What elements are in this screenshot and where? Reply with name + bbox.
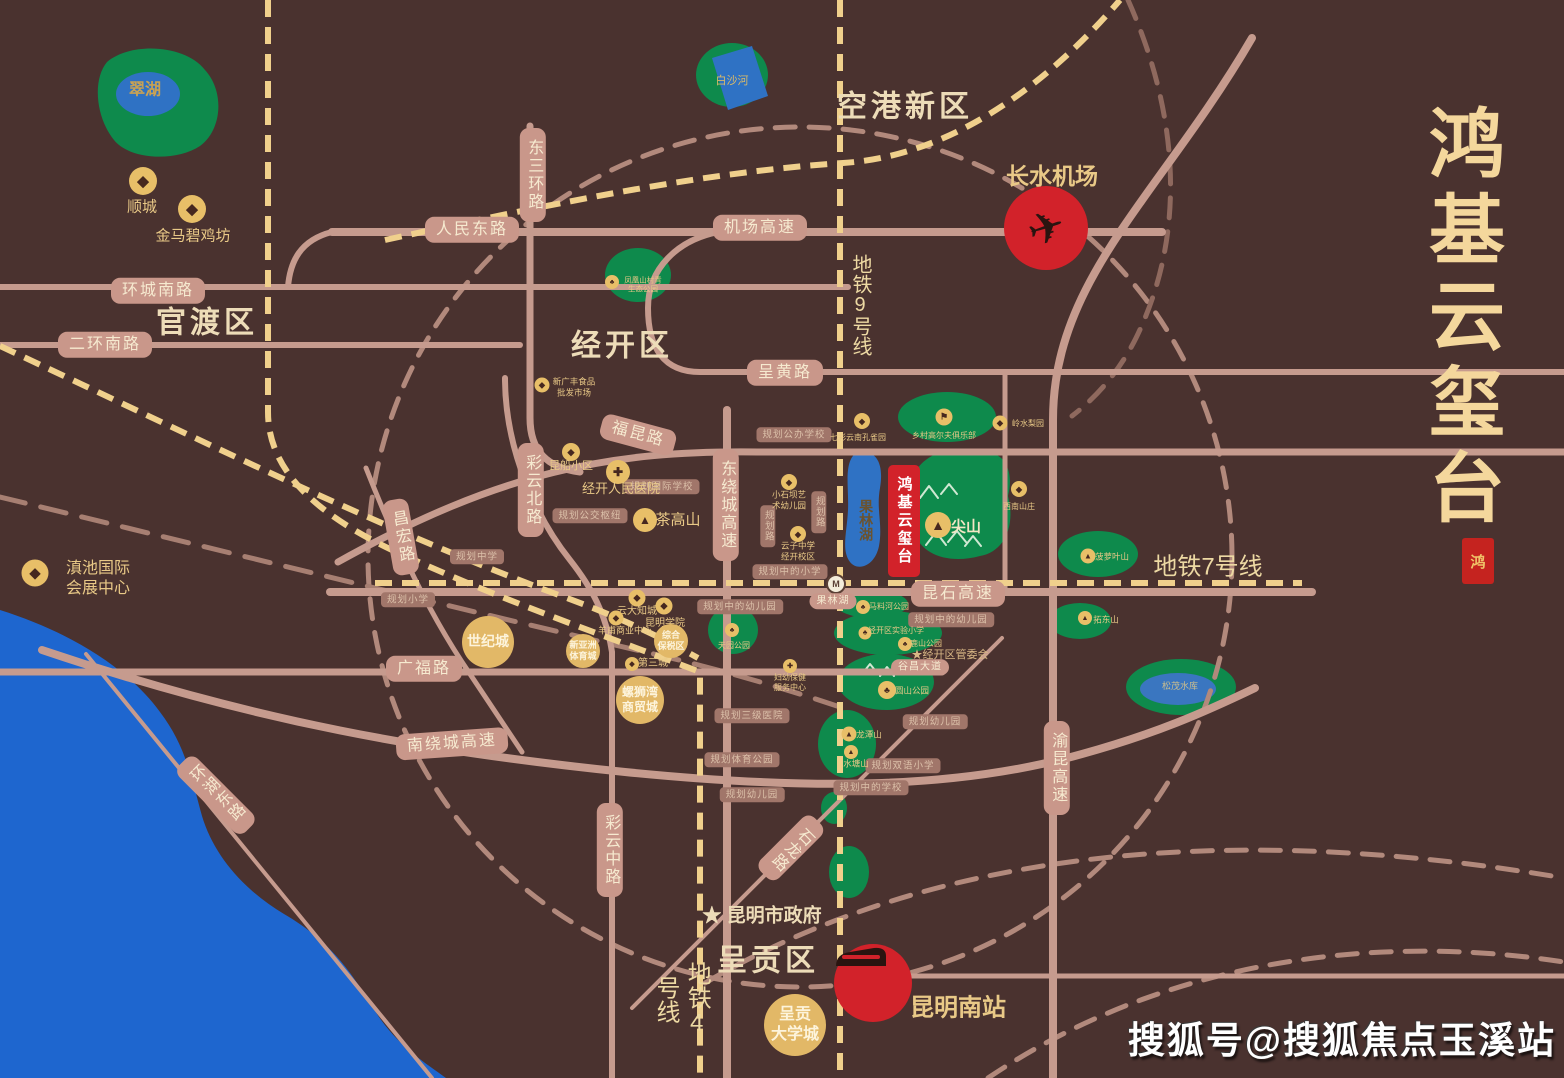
jianshan-label: 尖山 <box>951 517 981 537</box>
poi-xinan-shanzhuang: ◆ <box>1011 481 1027 497</box>
guolinhu-label: 果林湖 <box>857 499 875 541</box>
poi-golf-club-label: 乡村高尔夫俱乐部 <box>912 431 976 441</box>
airport-label: 长水机场 <box>1006 162 1098 192</box>
jichang-expwy: 机场高速 <box>713 215 807 241</box>
poi-xiaoshiba-kindergarten-label: 小石坝艺 术幼儿园 <box>772 489 806 510</box>
district-guandu: 官渡区 <box>156 304 258 343</box>
dongsanhuan-road: 东三环路 <box>520 128 546 222</box>
plan-pill: 规划路 <box>811 491 826 533</box>
chenghuang-road: 呈黄路 <box>747 360 823 386</box>
huanhu-dong-road: 环湖东路 <box>173 752 258 837</box>
train-icon <box>834 944 888 972</box>
poi-lushan-park-label: 鹿山公园 <box>910 639 942 649</box>
guchang-road: 谷昌大道 <box>891 659 949 675</box>
poi-tuodong-hill-label: 拓东山 <box>1093 615 1119 626</box>
plan-pill: 规划中的小学 <box>752 564 827 579</box>
poi-maliaohe-park: ♣ <box>856 600 870 614</box>
poi-maliaohe-park-label: 马料河公园 <box>869 602 909 612</box>
poi-tianyuan-park-label: 天园公园 <box>718 641 750 651</box>
district-chenggong: 呈贡区 <box>717 942 819 981</box>
landmark-shijicheng: 世纪城 <box>462 616 514 668</box>
plan-pill: 规划小学 <box>381 592 435 607</box>
songmao-label: 松茂水库 <box>1162 681 1198 693</box>
poi-jinma-biji-fang: ◆ <box>178 195 206 223</box>
poi-tuodong-hill: ▲ <box>1078 611 1092 625</box>
poi-peacock-park-label: 七彩云南孔雀园 <box>830 433 886 443</box>
caiyun-zhong-road: 彩云中路 <box>597 803 623 897</box>
plan-pill: 规划中的幼儿园 <box>697 599 783 614</box>
poi-fuyou-center: ✚ <box>783 659 797 673</box>
landmark-chenggong-univ-town: 呈贡 大学城 <box>764 994 826 1056</box>
plan-pill: 规划公办学校 <box>756 427 831 442</box>
south-station-marker <box>834 944 912 1022</box>
guangfu-road: 广福路 <box>386 656 462 682</box>
poi-chagaoshan: ▲ <box>633 508 657 532</box>
plan-pill: 规划公交枢纽 <box>552 508 627 523</box>
project-title-vertical: 鸿基云玺台 <box>1404 104 1514 534</box>
huancheng-nan-road: 环城南路 <box>111 278 205 304</box>
poi-fuyou-center-label: 妇幼保健 服务中心 <box>774 673 806 693</box>
nanraocheng-expwy: 南绕城高速 <box>395 727 509 761</box>
poi-yangfu-center-label: 羊甫商业中心 <box>598 625 652 636</box>
poi-kunchuan-block-label: 昆船小区 <box>549 460 593 474</box>
project-marker: 鸿基云玺台 <box>888 465 920 577</box>
erhuan-nan-road: 二环南路 <box>58 332 152 358</box>
poi-lingshui-liyuan: ◆ <box>993 416 1008 431</box>
changhong-road: 昌宏路 <box>381 497 420 576</box>
project-name: 鸿基云玺台 <box>894 476 915 566</box>
kunshi-expwy: 昆石高速 <box>911 581 1005 607</box>
poi-xinguangfeng-market: ◆ <box>535 378 550 393</box>
poi-golf-club: ⚑ <box>936 409 953 426</box>
metro-logo-letter: M <box>832 579 840 589</box>
landmark-luosiwan: 螺狮湾 商贸城 <box>616 676 664 724</box>
poi-dianchi-expo-center: ◆ <box>22 560 49 587</box>
poi-jianshan-peak: ▲ <box>925 512 951 538</box>
poi-boluoye-hill: ▲ <box>1081 549 1096 564</box>
plan-pill: 规划路 <box>760 505 775 547</box>
seal-character: 鸿 <box>1470 551 1485 572</box>
poi-longtanshan-label: 龙潭山 <box>856 730 882 741</box>
poi-boluoye-hill-label: 菠萝叶山 <box>1095 552 1129 563</box>
plan-pill: 规划三级医院 <box>714 708 789 723</box>
landmark-xinyazhou: 新亚洲 体育城 <box>566 634 600 668</box>
poi-fenghuangshan-park: ♣ <box>605 275 619 289</box>
yukun-expwy: 渝昆高速 <box>1044 721 1070 815</box>
poi-peacock-park: ◆ <box>854 413 870 429</box>
shilong-road: 石龙路 <box>755 812 827 884</box>
poi-dianchi-expo-center-label: 滇池国际 会展中心 <box>66 559 130 599</box>
south-station-label: 昆明南站 <box>910 992 1006 1023</box>
metro-station-icon: M <box>826 574 846 594</box>
plan-pill: 规划中学 <box>450 549 504 564</box>
poi-shuncheng-label: 顺城 <box>127 199 157 218</box>
poi-tianyuan-park: ♣ <box>725 623 739 637</box>
metro-7-label: 地铁7号线 <box>1153 551 1262 582</box>
renmin-dong-road: 人民东路 <box>425 217 519 243</box>
metro-9-label: 地铁9号线 <box>847 254 873 356</box>
poi-jinma-biji-fang-label: 金马碧鸡坊 <box>155 228 230 247</box>
poi-disancheng-label: 第三城 <box>638 658 668 671</box>
poi-fenghuangshan-park-label: 凤凰山村青 生态公园 <box>624 276 662 295</box>
poi-kunchuan-block: ◆ <box>562 443 580 461</box>
fukun-road: 福昆路 <box>598 412 678 457</box>
brand-seal: 鸿 <box>1462 538 1494 584</box>
poi-yunzi-school-label: 云子中学 经开校区 <box>781 540 815 561</box>
poi-jingkai-hospital-label: 经开人民医院 <box>582 481 660 497</box>
poi-xinguangfeng-market-label: 新广丰食品 批发市场 <box>553 376 596 397</box>
district-konggang: 空港新区 <box>837 88 973 127</box>
airport-marker: ✈ <box>1004 186 1088 270</box>
poi-xinan-shanzhuang-label: 西南山庄 <box>1003 502 1035 512</box>
location-map: 鸿基云玺台 ✈ M 鸿基云玺台 鸿 搜狐号@搜狐焦点玉溪站 空港新区官渡区经开区… <box>0 0 1564 1078</box>
plan-pill: 规划中的学校 <box>833 780 908 795</box>
dongraocheng-expwy: 东绕城高速 <box>713 449 739 561</box>
landmark-zonghe-baoshuiqu: 综合 保税区 <box>654 624 688 658</box>
caiyun-bei-road: 彩云北路 <box>518 443 544 537</box>
poi-xiaoshiba-kindergarten: ◆ <box>781 474 797 490</box>
poi-shuitangshan: ▲ <box>844 745 858 759</box>
baishahe-label: 白沙河 <box>716 74 749 88</box>
poi-chagaoshan-label: 茶高山 <box>655 512 700 531</box>
poi-yangfu-center: ◆ <box>609 611 624 626</box>
plan-pill: 规划幼儿园 <box>903 714 968 729</box>
plan-pill: 规划体育公园 <box>704 752 779 767</box>
poi-kunming-college: ◆ <box>656 598 673 615</box>
poi-yuanshan-park: ♣ <box>878 681 896 699</box>
poi-shuncheng: ◆ <box>129 167 157 195</box>
poi-yunda-zhicheng: ◆ <box>629 590 646 607</box>
airplane-icon: ✈ <box>1021 198 1072 258</box>
map-annotations: 鸿基云玺台 ✈ M 鸿基云玺台 鸿 搜狐号@搜狐焦点玉溪站 空港新区官渡区经开区… <box>0 0 1564 1078</box>
plan-pill: 规划幼儿园 <box>720 787 785 802</box>
metro-4-label: 地铁4号线 <box>650 960 712 1039</box>
poi-longtanshan: ▲ <box>842 727 857 742</box>
poi-yuanshan-park-label: 圆山公园 <box>895 686 929 697</box>
poi-shuitangshan-label: 水塘山 <box>843 759 869 770</box>
district-jingkai: 经开区 <box>571 327 673 366</box>
poi-disancheng: ◆ <box>625 657 639 671</box>
guolinhu-station-pill: 果林湖 <box>810 593 857 609</box>
gov-label: ★ 昆明市政府 <box>702 905 821 930</box>
cuihu-label: 翠湖 <box>129 81 161 102</box>
poi-experimental-school-label: 经开区实验小学 <box>868 626 924 636</box>
watermark: 搜狐号@搜狐焦点玉溪站 <box>1128 1010 1556 1064</box>
poi-lingshui-liyuan-label: 岭水梨园 <box>1012 419 1044 429</box>
plan-pill: 规划双语小学 <box>865 758 940 773</box>
